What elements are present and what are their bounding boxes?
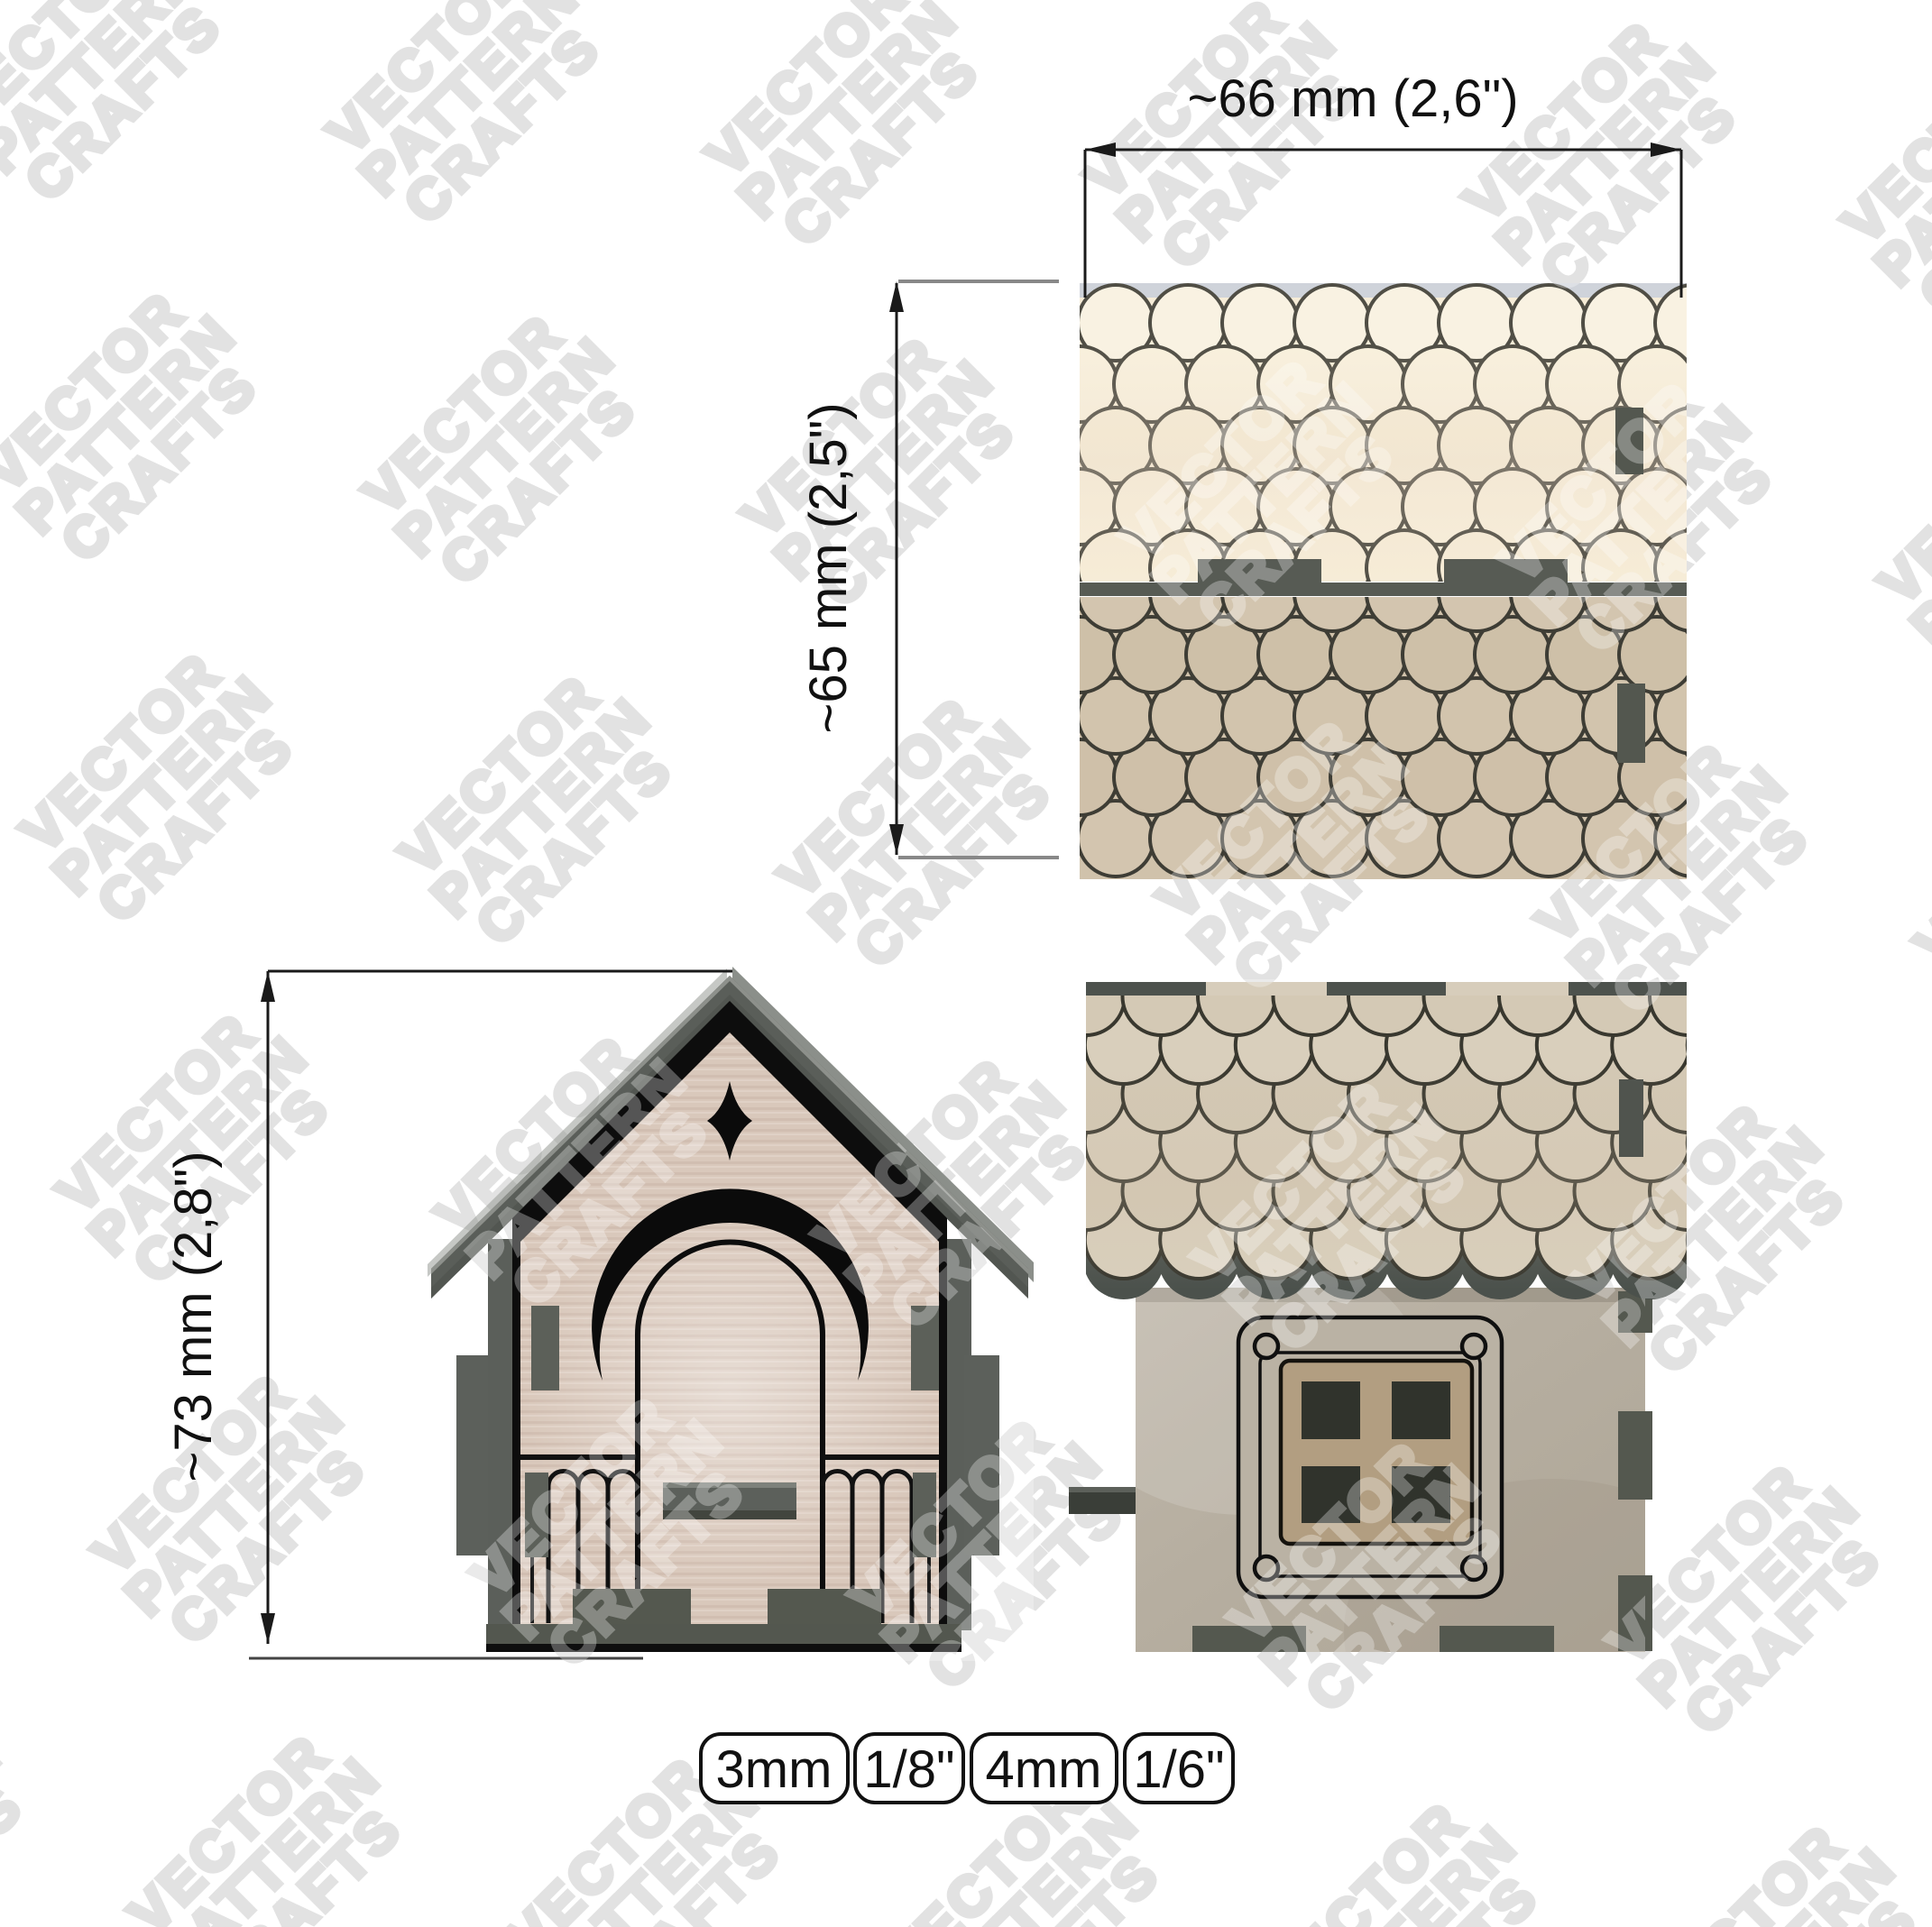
svg-text:4mm: 4mm xyxy=(986,1740,1102,1799)
svg-text:~65 mm (2,5"): ~65 mm (2,5") xyxy=(799,402,858,733)
svg-text:3mm: 3mm xyxy=(716,1740,833,1799)
svg-text:~73 mm (2,8"): ~73 mm (2,8") xyxy=(164,1151,223,1482)
svg-text:1/6": 1/6" xyxy=(1133,1740,1224,1799)
svg-text:1/8": 1/8" xyxy=(863,1740,954,1799)
svg-text:~66 mm (2,6"): ~66 mm (2,6") xyxy=(1187,69,1518,128)
